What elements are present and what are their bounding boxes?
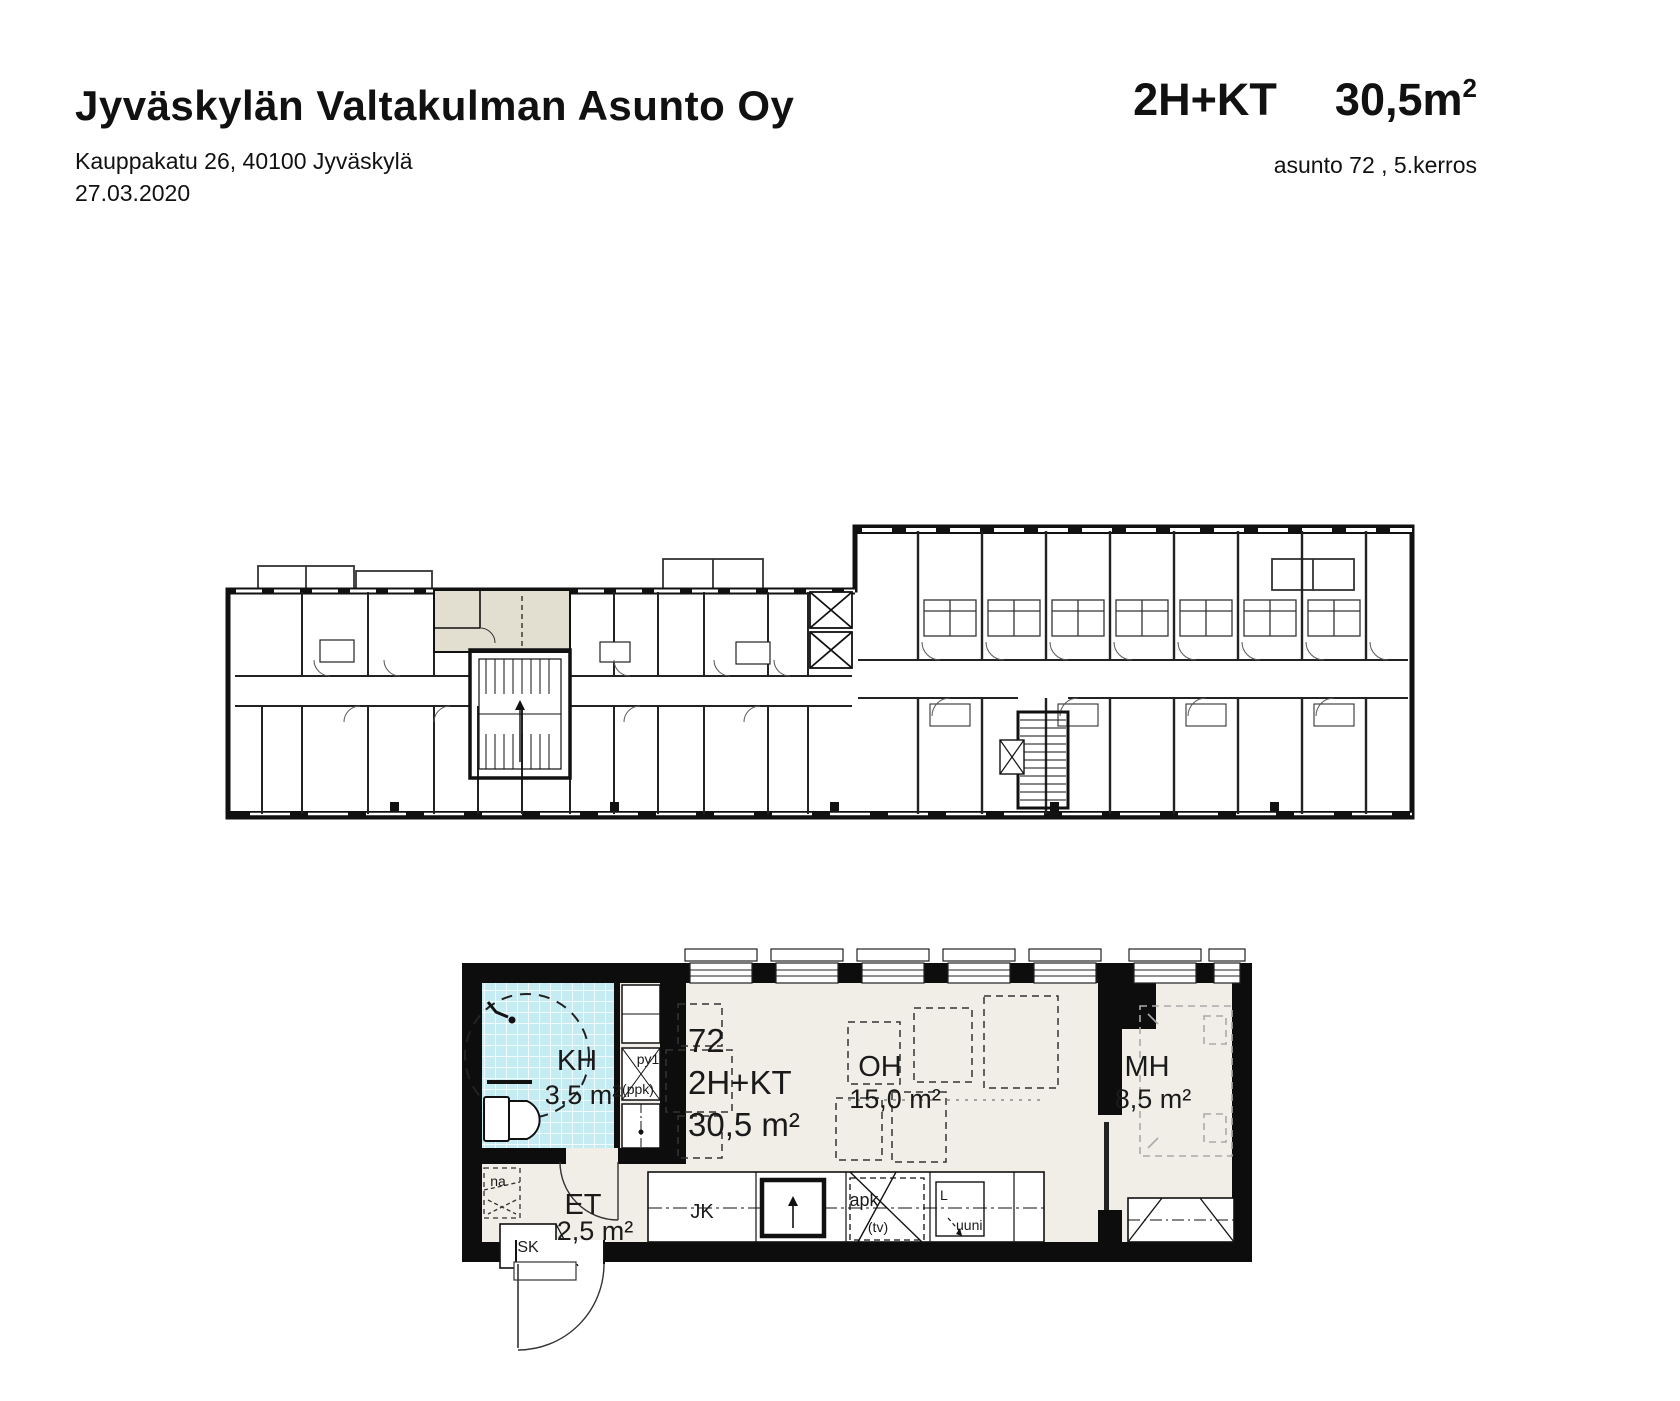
apk-note-label: (tv) <box>868 1219 888 1235</box>
document-title: Jyväskylän Valtakulman Asunto Oy <box>75 82 794 130</box>
kh-area: 3,5 m² <box>545 1080 622 1110</box>
et-area: 2,5 m² <box>557 1216 634 1246</box>
floor-plan-sheet: { "header": { "title": "Jyväskylän Valta… <box>0 0 1680 1401</box>
building-overview-plan <box>222 515 1428 840</box>
sink-icon <box>622 1104 660 1148</box>
apartment-floor-plan: KH 3,5 m² py1 (ppk) 72 2H+KT 30,5 m² OH … <box>455 895 1265 1400</box>
oh-label: OH <box>858 1051 902 1083</box>
toilet-icon <box>484 1097 540 1141</box>
document-date: 27.03.2020 <box>75 180 190 207</box>
overview-highlighted-unit <box>434 590 570 652</box>
mh-label: MH <box>1124 1051 1169 1083</box>
apk-label: apk <box>849 1190 879 1210</box>
unit-summary: 2H+KT 30,5m2 <box>1133 74 1477 126</box>
entry-door-icon <box>514 1240 604 1350</box>
oh-area: 15,0 m² <box>849 1084 941 1114</box>
stove-label: L <box>940 1187 948 1203</box>
kh-label: KH <box>557 1045 597 1077</box>
sk-label: SK <box>517 1239 539 1256</box>
mh-area: 8,5 m² <box>1115 1084 1192 1114</box>
apartment-type: 2H+KT <box>688 1064 792 1101</box>
ppk-label: (ppk) <box>622 1081 654 1097</box>
wardrobe-icon <box>1128 1198 1234 1242</box>
apartment-number: 72 <box>688 1022 725 1059</box>
py1-label: py1 <box>637 1051 660 1067</box>
document-address: Kauppakatu 26, 40100 Jyväskylä <box>75 148 413 175</box>
sliding-door-icon <box>1104 1122 1109 1210</box>
unit-area: 30,5m2 <box>1335 74 1477 126</box>
stove-icon <box>762 1180 824 1236</box>
unit-type: 2H+KT <box>1133 74 1277 126</box>
jk-label: JK <box>690 1201 714 1223</box>
apartment-area: 30,5 m² <box>688 1106 800 1143</box>
unit-location: asunto 72 , 5.kerros <box>1274 152 1477 179</box>
oven-label: uuni <box>956 1217 982 1233</box>
na-label: na <box>490 1173 506 1189</box>
